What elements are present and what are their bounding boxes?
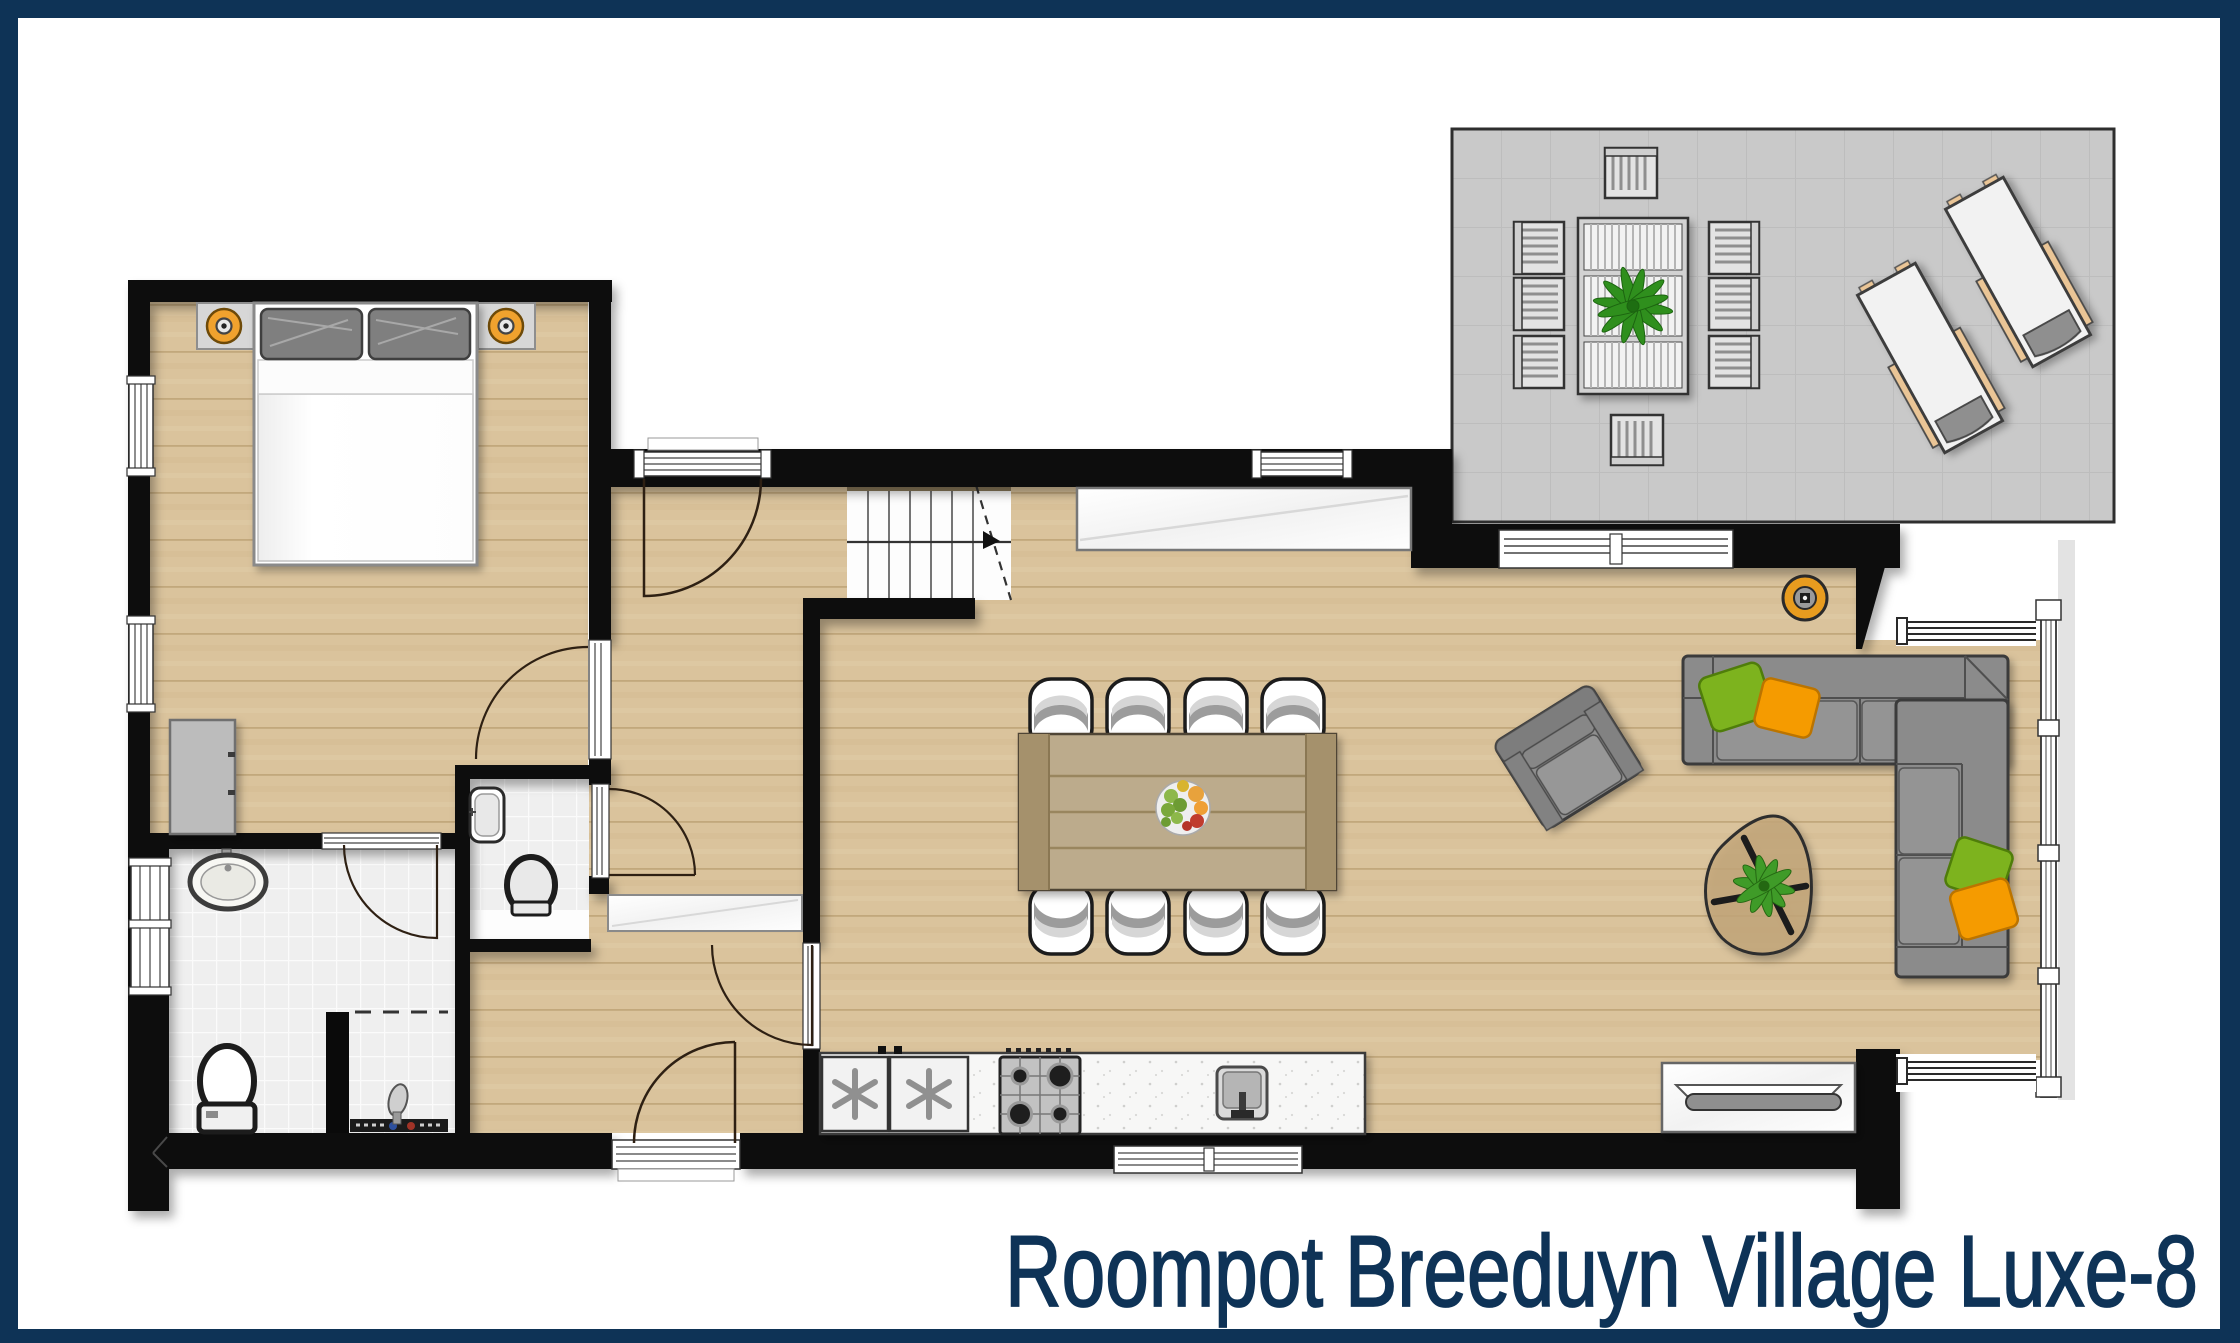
svg-text:Roompot Breeduyn Village Luxe-: Roompot Breeduyn Village Luxe-8 <box>1005 1216 2198 1328</box>
